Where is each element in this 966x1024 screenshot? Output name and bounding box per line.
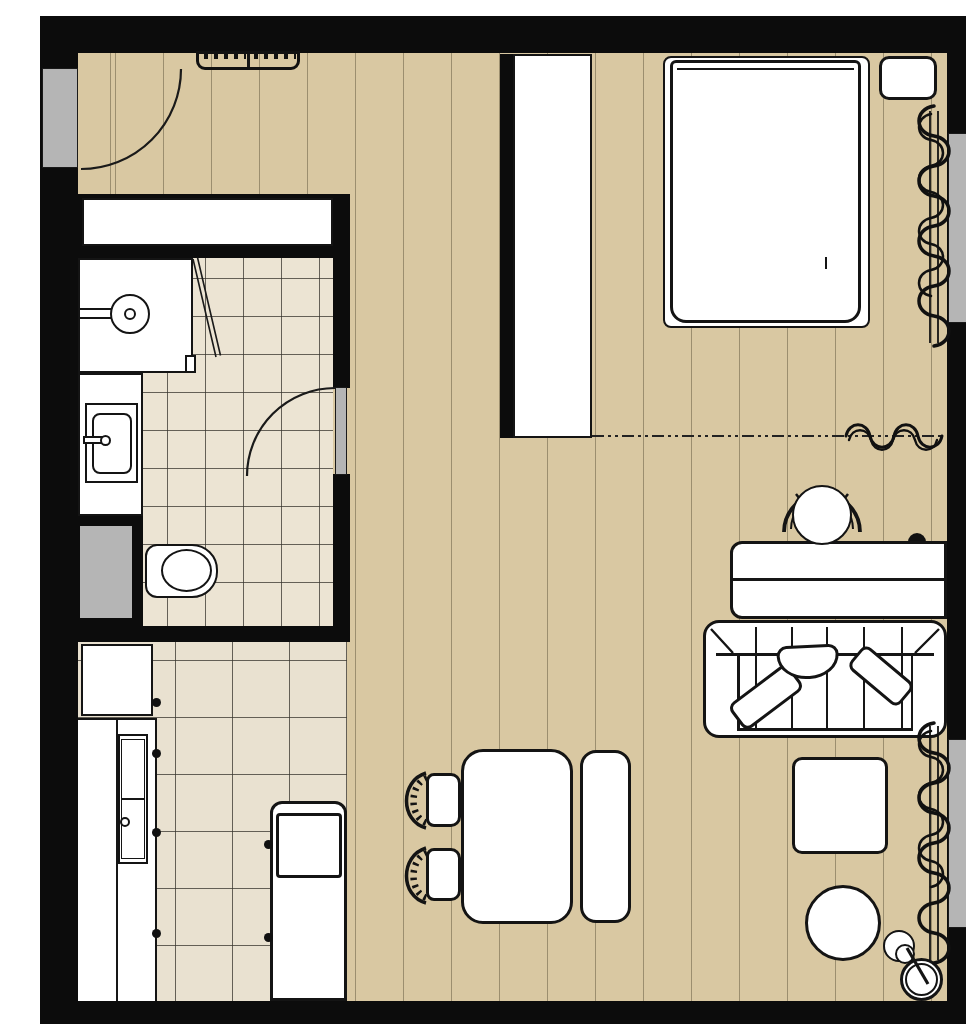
island-sink — [276, 813, 342, 878]
toilet-bowl — [161, 549, 212, 592]
dining-chair-seat — [426, 848, 461, 901]
hall-closet — [82, 198, 333, 246]
wall-bathroom-south — [78, 626, 350, 642]
sofa-cushion-seam — [826, 627, 828, 731]
bed-headboard-line — [677, 68, 854, 70]
radiator-fins — [204, 54, 246, 59]
dining-chair-seat — [426, 773, 461, 827]
cooktop-knob — [120, 817, 130, 827]
living-window — [948, 739, 966, 928]
cabinet-handle — [152, 749, 161, 758]
basin-faucet-knob — [100, 435, 111, 446]
radiator-divider — [247, 54, 250, 67]
pouf — [805, 885, 881, 961]
cabinet-handle — [264, 840, 273, 849]
fridge — [81, 644, 153, 716]
cabinet-handle — [152, 698, 161, 707]
desk-chair-seat — [792, 485, 852, 545]
radiator — [196, 51, 300, 70]
bed-duvet — [670, 60, 861, 323]
cooktop-divider — [122, 798, 144, 800]
wall-bathroom-east-upper — [333, 258, 350, 388]
bathroom-door-leaf — [335, 387, 347, 475]
cabinet-handle — [152, 929, 161, 938]
wall-bathroom-east-lower — [333, 474, 350, 628]
nightstand — [879, 56, 937, 100]
sofa-arm-line — [911, 653, 914, 731]
entry-door-leaf — [42, 68, 78, 168]
cabinet-handle — [264, 933, 273, 942]
bedroom-window — [948, 133, 966, 323]
desk-divider — [733, 578, 944, 581]
wardrobe — [513, 54, 592, 438]
shower-door-pivot — [185, 355, 196, 373]
shower-drain — [124, 308, 136, 320]
sofa-front-line — [739, 728, 911, 731]
coffee-table — [792, 757, 888, 854]
radiator-fins — [254, 54, 296, 59]
wall-bedroom-partition — [500, 54, 513, 438]
floor-lamp-base-ring — [905, 963, 938, 996]
dining-table — [461, 749, 573, 924]
floor-plan — [40, 16, 966, 1024]
duct-shaft — [80, 526, 132, 618]
cabinet-handle — [152, 828, 161, 837]
floor-lamp-head — [895, 944, 915, 964]
dining-bench — [580, 750, 631, 923]
